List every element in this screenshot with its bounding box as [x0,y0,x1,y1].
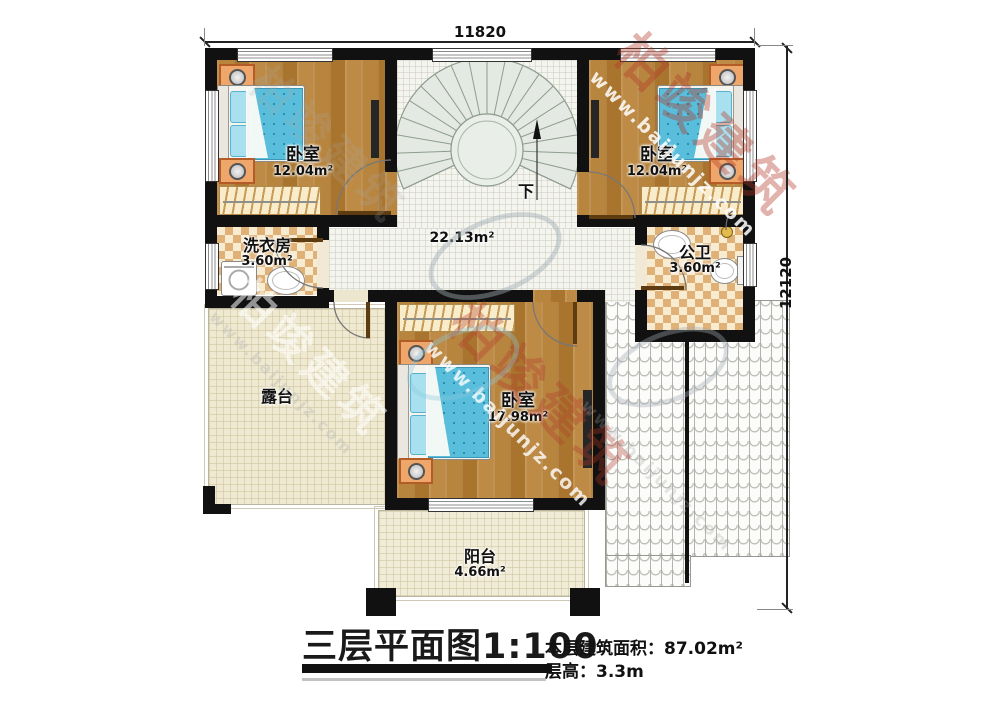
room-area: 12.04m² [243,165,363,180]
floor-plan-page: 卧室 12.04m² 卧室 12.04m² 洗衣房 3.60m² 公卫 3.60… [0,0,1000,706]
stair-direction-label: 下 [514,183,538,201]
room-area: 4.66m² [430,566,530,581]
room-label-laundry: 洗衣房 3.60m² [212,237,322,269]
room-label-bedroom-tl: 卧室 12.04m² [243,146,363,180]
room-area: 3.60m² [640,262,750,277]
room-label-bedroom-b: 卧室 17.98m² [458,392,578,426]
title-underline [302,664,552,673]
floor-area-line: 本层建筑面积：87.02m² [545,638,743,661]
room-area: 12.04m² [597,165,717,180]
room-area: 3.60m² [212,255,322,270]
room-name: 露台 [227,388,327,406]
floor-info: 本层建筑面积：87.02m² 层高：3.3m [545,638,743,684]
floor-height-line: 层高：3.3m [545,661,743,684]
extension-line [757,45,793,46]
floor-area-value: 87.02m² [664,639,743,659]
floor-height-label: 层高： [545,662,596,682]
room-name: 阳台 [430,548,530,566]
drawing-title-text: 三层平面图 [302,627,482,667]
room-label-balcony: 阳台 4.66m² [430,548,530,580]
room-label-bedroom-tr: 卧室 12.04m² [597,146,717,180]
dimension-top-value: 11820 [430,23,530,41]
room-name: 公卫 [640,244,750,262]
floor-area-label: 本层建筑面积： [545,639,664,659]
room-label-bathroom: 公卫 3.60m² [640,244,750,276]
room-label-hall: 22.13m² [402,231,522,247]
extension-line [754,28,755,46]
door-swings [0,0,1000,706]
room-area: 17.98m² [458,411,578,426]
dimension-right-value: 12120 [777,253,795,313]
extension-line [757,609,793,610]
dimension-line-right [786,46,788,610]
dimension-line-top [205,41,755,43]
floor-height-value: 3.3m [596,662,644,682]
room-name: 卧室 [597,146,717,165]
room-label-terrace: 露台 [227,388,327,406]
stair-down-text: 下 [514,183,538,201]
room-name: 洗衣房 [212,237,322,255]
room-area: 22.13m² [402,231,522,247]
extension-line [204,28,205,46]
title-underline-shadow [302,678,546,681]
room-name: 卧室 [243,146,363,165]
room-name: 卧室 [458,392,578,411]
